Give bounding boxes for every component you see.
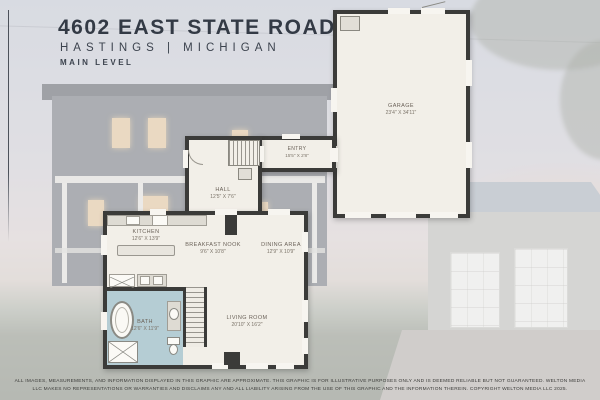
shower-x-icon (109, 342, 137, 362)
page-title: 4602 EAST STATE ROAD (58, 16, 336, 40)
window-opening (276, 363, 294, 369)
door-opening (388, 8, 410, 14)
washer (140, 276, 150, 285)
disclaimer-text: ALL IMAGES, MEASUREMENTS, AND INFORMATIO… (10, 378, 590, 393)
subtitle-level: MAIN LEVEL (60, 58, 133, 67)
hall-staircase (228, 140, 260, 166)
window-opening (268, 209, 290, 215)
room-label-bath: BATH 12'6" X 11'9" (107, 319, 183, 333)
room-label-kitchen: KITCHEN 12'6" X 13'9" (110, 229, 182, 243)
window-opening (466, 60, 472, 86)
kitchen-island (117, 245, 175, 256)
dryer (153, 276, 163, 285)
window-opening (466, 142, 472, 168)
window-opening (386, 212, 416, 218)
window-opening (345, 212, 371, 218)
room-label-entry: ENTRY 15'5" X 2'8" (257, 146, 337, 159)
subtitle-location: HASTINGS | MICHIGAN (60, 42, 281, 54)
door-opening (421, 8, 445, 14)
kitchen-sink (126, 216, 140, 225)
toilet-bowl (169, 344, 178, 355)
door-opening (282, 134, 300, 139)
door-opening (331, 88, 337, 112)
main-staircase (183, 287, 207, 347)
window-opening (430, 212, 458, 218)
closet-hatch (109, 274, 135, 287)
window-opening (246, 363, 268, 369)
room-label-living-room: LIVING ROOM 20'10" X 16'2" (207, 315, 287, 329)
window-opening (302, 338, 308, 354)
left-rule (8, 10, 9, 242)
window-opening (302, 300, 308, 322)
closet-x-icon (110, 277, 134, 288)
fireplace (224, 352, 240, 365)
window-opening (101, 235, 107, 255)
kitchen-stove (152, 215, 168, 226)
wall-stub (225, 215, 237, 235)
shower (108, 341, 138, 363)
room-label-dining-area: DINING AREA 12'9" X 10'9" (241, 242, 321, 256)
room-label-garage: GARAGE 23'4" X 34'11" (361, 103, 441, 117)
room-label-hall: HALL 12'5" X 7'6" (183, 187, 263, 201)
stair-landing (238, 168, 252, 180)
garage-utility-closet (340, 16, 360, 31)
floorplan-graphic: 4602 EAST STATE ROAD HASTINGS | MICHIGAN… (0, 0, 600, 400)
